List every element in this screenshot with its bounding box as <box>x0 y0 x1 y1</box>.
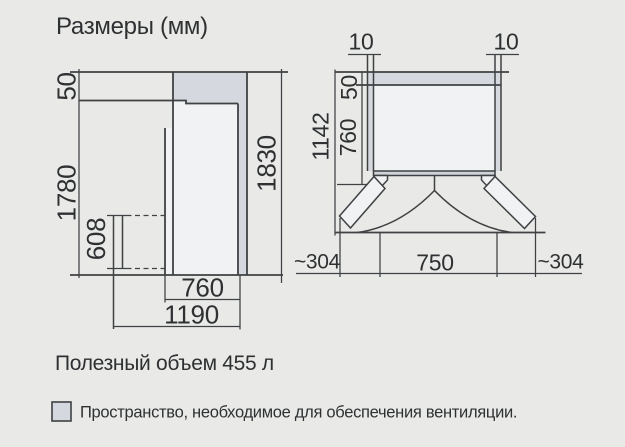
dim-label-1830: 1830 <box>252 135 282 192</box>
ventilation-legend-text: Пространство, необходимое для обеспечени… <box>80 404 517 422</box>
dim-label-608: 608 <box>81 218 111 260</box>
dimensions-figure: Размеры (мм) 50 1780 608 1830 760 <box>0 0 625 447</box>
side-fridge-body <box>165 101 238 276</box>
dim-label-10-right: 10 <box>494 29 519 55</box>
dim-label-304-left: ~304 <box>294 251 341 274</box>
dim-label-750: 750 <box>416 250 453 276</box>
dim-label-10-left: 10 <box>349 29 374 55</box>
page-title: Размеры (мм) <box>56 13 208 40</box>
dim-label-1190: 1190 <box>164 300 219 330</box>
top-fridge-front-band <box>374 171 496 176</box>
dim-label-760-top: 760 <box>335 119 361 156</box>
dim-label-760-side: 760 <box>181 273 223 303</box>
right-door-open <box>484 177 536 229</box>
dim-label-304-right: ~304 <box>537 251 584 274</box>
top-view-diagram: 10 10 1142 50 760 ~304 750 ~304 <box>294 29 584 278</box>
diagram-canvas: Размеры (мм) 50 1780 608 1830 760 <box>0 0 625 447</box>
dim-label-1142: 1142 <box>308 112 334 160</box>
ventilation-legend-swatch <box>52 402 71 421</box>
dim-label-50-top: 50 <box>52 72 82 100</box>
top-fridge-body <box>374 85 496 171</box>
dim-label-50-rear: 50 <box>336 75 362 100</box>
side-hidden-edges <box>127 216 166 269</box>
dim-label-1780: 1780 <box>52 165 82 222</box>
volume-note: Полезный объем 455 л <box>55 352 274 375</box>
top-ventilation-right <box>495 85 501 171</box>
ventilation-legend: Пространство, необходимое для обеспечени… <box>52 402 517 422</box>
top-ventilation-rear <box>368 72 502 85</box>
side-view-diagram: 50 1780 608 1830 760 1190 <box>52 69 289 330</box>
top-ventilation-left <box>368 85 374 171</box>
